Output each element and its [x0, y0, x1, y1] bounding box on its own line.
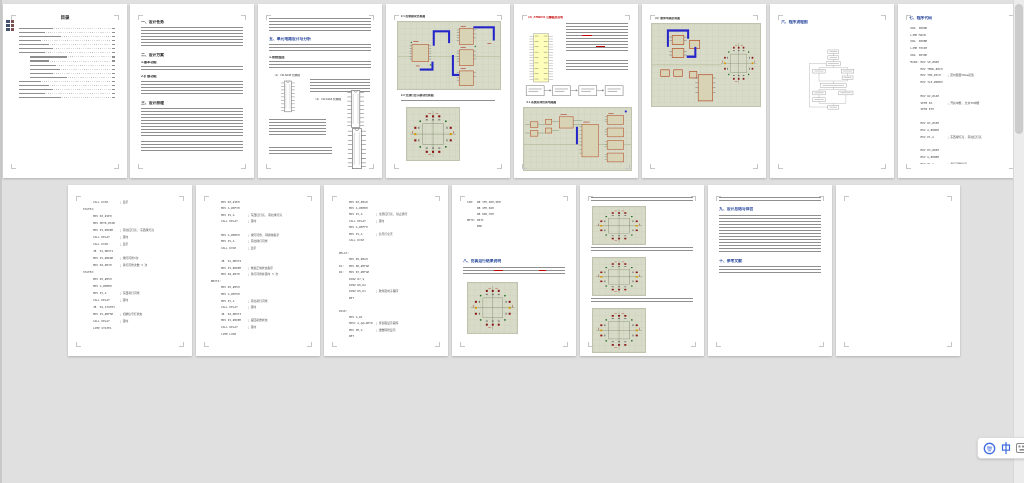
toc-leader-dots — [42, 81, 111, 82]
document-page-14[interactable]: 九、设计总结与体会 十、参考文献 — [708, 185, 832, 356]
toc-leader-dots — [54, 73, 111, 74]
toc-leader-dots — [54, 28, 111, 29]
toc-page-number — [112, 56, 115, 57]
vertical-scrollbar-thumb[interactable] — [1015, 4, 1023, 134]
margin-corner-mark — [497, 15, 502, 20]
margin-corner-mark — [844, 342, 849, 347]
paragraph — [401, 100, 495, 103]
margin-corner-mark — [819, 342, 824, 347]
toc-entry-text — [19, 28, 53, 29]
toc-page-number — [112, 85, 115, 86]
toc-page-number — [112, 36, 115, 37]
program-flowchart — [806, 34, 861, 130]
window-left-edge — [0, 0, 2, 483]
toc-leader-dots — [68, 56, 111, 57]
margin-corner-mark — [307, 196, 312, 201]
paragraph — [269, 61, 371, 70]
margin-corner-mark — [522, 164, 527, 169]
document-page-9[interactable]: CALL DISP ；显示 STATE1: MOV R3,#1EH MOV DP… — [68, 185, 192, 356]
margin-corner-mark — [753, 164, 758, 169]
paragraph — [141, 141, 243, 153]
figure-caption: （2）74LS164 管脚图 — [314, 98, 342, 101]
margin-corner-mark — [394, 15, 399, 20]
toc-entry-text — [19, 81, 41, 82]
margin-corner-mark — [332, 342, 337, 347]
toc-leader-dots — [62, 36, 111, 37]
dip-chip-figure-tall — [342, 126, 372, 171]
paragraph — [269, 147, 332, 156]
paragraph — [463, 267, 565, 276]
margin-corner-mark — [76, 196, 81, 201]
margin-corner-mark — [563, 342, 568, 347]
margin-corner-mark — [522, 15, 527, 20]
toc-leader-dots — [46, 52, 111, 53]
schematic-simulation-full — [651, 23, 761, 107]
margin-corner-mark — [114, 15, 119, 20]
document-page-5[interactable]: （3）AT89C51 引脚图及说明 3.1 系统总体仿真电路图 — [514, 4, 638, 178]
heading-2: 二、设计方案 — [141, 53, 164, 57]
toc-page-number — [112, 65, 115, 66]
heading-blue: 八、仿真运行结果说明 — [463, 259, 501, 263]
document-page-11[interactable]: MOV R3,#0AH MOV A,#0EBH MOV P1,A ；全部红灯亮,… — [324, 185, 448, 356]
margin-corner-mark — [753, 15, 758, 20]
margin-corner-mark — [650, 164, 655, 169]
toc-page-number — [112, 81, 115, 82]
schematic-result-state-2 — [592, 257, 646, 297]
paragraph — [719, 215, 821, 253]
margin-corner-mark — [394, 164, 399, 169]
margin-corner-mark — [266, 164, 271, 169]
toc-page-number — [112, 52, 115, 53]
toc-entry-text — [30, 69, 61, 70]
paragraph — [141, 108, 243, 138]
margin-corner-mark — [650, 15, 655, 20]
toc-title: 目录 — [3, 15, 127, 20]
margin-corner-mark — [114, 164, 119, 169]
paragraph — [269, 18, 371, 33]
anchor-icon — [11, 24, 15, 27]
heading-blue: 九、设计总结与体会 — [719, 207, 753, 211]
vertical-scrollbar-track[interactable] — [1013, 0, 1024, 483]
toc-entry-text — [19, 48, 53, 49]
toc-page-number — [112, 40, 115, 41]
figure-caption-red: （3）AT89C51 引脚图及说明 — [526, 16, 562, 19]
toc-entry-text — [19, 89, 53, 90]
margin-corner-mark — [76, 342, 81, 347]
heading-1: 一、设计任务 — [141, 20, 164, 24]
toc-page-number — [112, 69, 115, 70]
toc-entry-text — [19, 32, 45, 33]
margin-corner-mark — [369, 164, 374, 169]
toc-entry-text — [19, 40, 41, 41]
toc-leader-dots — [50, 44, 111, 45]
margin-corner-mark — [947, 342, 952, 347]
assembly-code-listing: MOV R3,#0AH MOV A,#0EBH MOV P1,A ；全部红灯亮,… — [339, 199, 443, 343]
ime-keyboard-icon[interactable] — [1016, 443, 1024, 453]
margin-corner-mark — [563, 196, 568, 201]
paragraph — [269, 44, 371, 53]
red-inline-text — [582, 35, 592, 36]
red-inline-text — [539, 270, 546, 271]
object-anchor-marks — [6, 20, 15, 32]
toc-page-number — [112, 48, 115, 49]
schematic-result-state-1 — [592, 206, 646, 246]
margin-corner-mark — [625, 15, 630, 20]
heading-blue: 六、程序流程图 — [781, 20, 808, 24]
margin-corner-mark — [881, 15, 886, 20]
anchor-icon — [11, 28, 15, 31]
toc-entry-text — [19, 93, 45, 94]
document-page-6[interactable]: （4）整体电路仿真图 — [642, 4, 766, 178]
schematic-overall — [523, 107, 632, 172]
toc-entry-text — [19, 52, 45, 53]
document-viewer-canvas: 目录 一、设计任务 二、设计方案 1.基本功能 2.扩展功能 三、设计原理 五、… — [0, 0, 1024, 483]
heading-3: 三、设计原理 — [141, 101, 164, 105]
margin-corner-mark — [332, 196, 337, 201]
toc-leader-dots — [50, 85, 111, 86]
toc-leader-dots — [54, 48, 111, 49]
toc-leader-dots — [50, 61, 111, 62]
margin-corner-mark — [819, 196, 824, 201]
subheading-1: 1.基本功能 — [141, 61, 156, 64]
margin-corner-mark — [266, 15, 271, 20]
toc-page-number — [112, 93, 115, 94]
toc-entry-text — [30, 60, 50, 61]
margin-corner-mark — [947, 196, 952, 201]
schematic-traffic-led-cross — [467, 282, 519, 334]
mcu-pinout-figure — [525, 23, 557, 93]
document-page-7[interactable]: 六、程序流程图 — [770, 4, 894, 178]
document-page-15-blank[interactable] — [836, 185, 960, 356]
margin-corner-mark — [460, 342, 465, 347]
margin-corner-mark — [778, 164, 783, 169]
toc-page-number — [112, 73, 115, 74]
toc-page-number — [112, 60, 115, 61]
red-inline-text — [596, 46, 605, 47]
margin-corner-mark — [11, 164, 16, 169]
margin-corner-mark — [716, 196, 721, 201]
margin-corner-mark — [307, 342, 312, 347]
margin-corner-mark — [844, 196, 849, 201]
margin-corner-mark — [716, 342, 721, 347]
schematic-control-module — [397, 21, 501, 89]
heading-blue: 十、参考文献 — [719, 259, 742, 263]
system-block-diagram — [525, 84, 627, 98]
margin-corner-mark — [497, 164, 502, 169]
document-page-4[interactable]: 2.1 控制模块仿真图 2.2 交通灯显示模块仿真图 — [386, 4, 510, 178]
red-inline-text — [494, 270, 503, 271]
schematic-result-state-3 — [592, 308, 646, 353]
document-page-3[interactable]: 五、单元电路设计与分析 1.系统组成 （1）74LS245 管脚图 （2）74L… — [258, 4, 382, 178]
document-page-13[interactable] — [580, 185, 704, 356]
assembly-code-listing: MOV R3,#1EH MOV A,#0F3H MOV P1,A ；东西红灯亮,… — [211, 199, 315, 343]
toc-page-number — [112, 89, 115, 90]
paragraph — [141, 66, 243, 72]
subheading: 1.系统组成 — [269, 56, 284, 59]
assembly-code-listing: CALL DISP ；显示 STATE1: MOV R3,#1EH MOV DP… — [83, 199, 187, 343]
margin-corner-mark — [179, 196, 184, 201]
toc-entry-text — [19, 44, 49, 45]
paragraph — [591, 197, 693, 203]
toc-leader-dots — [46, 93, 111, 94]
document-page-12[interactable]: TAB: DB 3FH,06H,5BH DB 4FH,66H DB 6DH,7D… — [452, 185, 576, 356]
margin-corner-mark — [138, 164, 143, 169]
margin-corner-mark — [241, 15, 246, 20]
anchor-icon — [6, 24, 10, 27]
toc-page-number — [112, 32, 115, 33]
heading-blue: 五、单元电路设计与分析 — [269, 37, 311, 41]
toc-leader-dots — [54, 89, 111, 90]
ime-status-bar[interactable] — [977, 437, 1024, 459]
margin-corner-mark — [138, 15, 143, 20]
ime-logo-icon[interactable] — [983, 442, 996, 455]
toc-entry[interactable] — [19, 95, 115, 99]
document-page-8[interactable]: 七、程序代码 ORG 0000H LJMP MAIN ORG 000BH LJM… — [898, 4, 1022, 178]
margin-corner-mark — [906, 164, 911, 169]
paragraph — [591, 298, 693, 304]
ime-mode-chinese-icon[interactable] — [1001, 442, 1011, 454]
margin-corner-mark — [204, 196, 209, 201]
document-page-1-toc[interactable]: 目录 — [3, 4, 127, 178]
toc-entry-text — [30, 56, 67, 57]
margin-corner-mark — [435, 342, 440, 347]
margin-corner-mark — [588, 342, 593, 347]
subheading-2: 2.扩展功能 — [141, 75, 156, 78]
toc-page-number — [112, 28, 115, 29]
toc-leader-dots — [61, 69, 111, 70]
margin-corner-mark — [435, 196, 440, 201]
paragraph — [141, 81, 243, 96]
toc-leader-dots — [57, 65, 111, 66]
toc-entry-text — [19, 36, 61, 37]
paragraph — [566, 60, 628, 72]
toc-leader-dots — [42, 40, 111, 41]
toc-list — [19, 27, 115, 100]
toc-page-number — [112, 97, 115, 98]
margin-corner-mark — [625, 164, 630, 169]
paragraph — [269, 119, 326, 137]
schematic-traffic-led-cross — [406, 107, 460, 161]
margin-corner-mark — [11, 15, 16, 20]
margin-corner-mark — [778, 15, 783, 20]
anchor-icon — [6, 28, 10, 31]
toc-leader-dots — [62, 97, 111, 98]
figure-caption: （1）74LS245 管脚图 — [273, 74, 301, 77]
toc-page-number — [112, 44, 115, 45]
margin-corner-mark — [691, 342, 696, 347]
margin-corner-mark — [179, 342, 184, 347]
margin-corner-mark — [241, 164, 246, 169]
margin-corner-mark — [588, 196, 593, 201]
figure-caption: 2.1 控制模块仿真图 — [401, 15, 425, 18]
dip-chip-figure — [273, 79, 303, 114]
assembly-code-listing: TAB: DB 3FH,06H,5BH DB 4FH,66H DB 6DH,7D… — [467, 199, 571, 243]
dip-chip-figure — [342, 88, 369, 130]
paragraph — [719, 266, 821, 275]
margin-corner-mark — [881, 164, 886, 169]
toc-entry-text — [30, 73, 53, 74]
toc-page-number — [112, 77, 115, 78]
toc-leader-dots — [46, 32, 111, 33]
toc-entry-text — [30, 65, 56, 66]
paragraph — [566, 23, 628, 53]
toc-entry-text — [19, 97, 61, 98]
margin-corner-mark — [369, 15, 374, 20]
margin-corner-mark — [460, 196, 465, 201]
figure-caption: 2.2 交通灯显示模块仿真图 — [401, 94, 434, 97]
paragraph — [719, 197, 821, 203]
figure-caption: （4）整体电路仿真图 — [653, 17, 680, 20]
toc-entry-text — [30, 77, 67, 78]
paragraph — [141, 27, 243, 48]
paragraph — [591, 247, 693, 253]
heading-blue: 七、程序代码 — [909, 16, 932, 20]
margin-corner-mark — [906, 15, 911, 20]
assembly-code-listing: ORG 0000H LJMP MAIN ORG 000BH LJMP T0INT… — [910, 25, 1017, 164]
figure-caption: 3.1 系统总体仿真电路图 — [526, 101, 556, 104]
document-page-2[interactable]: 一、设计任务 二、设计方案 1.基本功能 2.扩展功能 三、设计原理 — [130, 4, 254, 178]
document-page-10[interactable]: MOV R3,#1EH MOV A,#0F3H MOV P1,A ；东西红灯亮,… — [196, 185, 320, 356]
toc-leader-dots — [68, 77, 111, 78]
margin-corner-mark — [204, 342, 209, 347]
margin-corner-mark — [691, 196, 696, 201]
toc-entry-text — [19, 85, 49, 86]
